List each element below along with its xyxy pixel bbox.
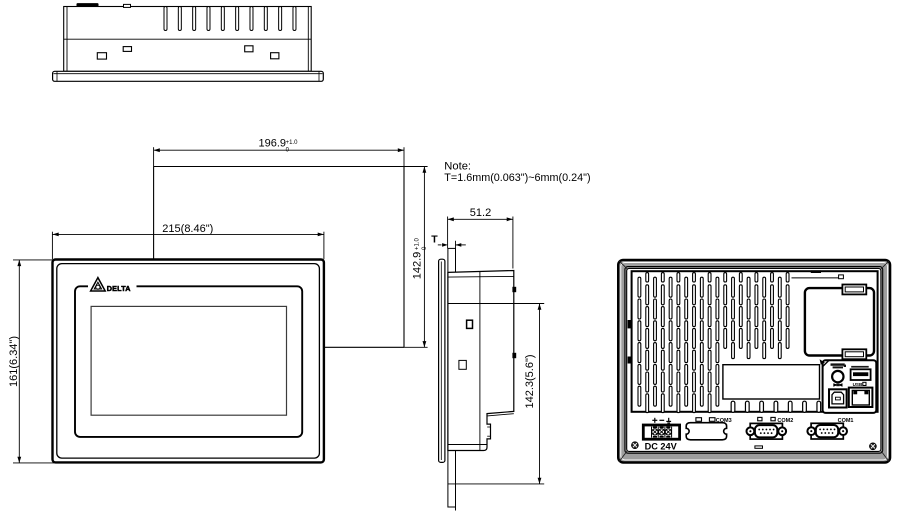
- svg-text:DC 24V: DC 24V: [645, 441, 678, 451]
- svg-text:51.2: 51.2: [470, 207, 491, 219]
- svg-text:Note:: Note:: [444, 160, 471, 172]
- svg-text:215(8.46"): 215(8.46"): [162, 223, 213, 235]
- svg-text:196.9: 196.9: [259, 137, 287, 149]
- svg-text:161(6.34"): 161(6.34"): [8, 336, 20, 387]
- svg-text:USB: USB: [853, 382, 863, 387]
- svg-text:142.9: 142.9: [412, 252, 424, 280]
- svg-text:DELTA: DELTA: [107, 284, 131, 293]
- svg-text:142.3(5.6"): 142.3(5.6"): [524, 354, 536, 408]
- svg-text:T=1.6mm(0.063")~6mm(0.24"): T=1.6mm(0.063")~6mm(0.24"): [444, 172, 590, 184]
- svg-text:+1.0: +1.0: [414, 237, 420, 250]
- svg-text:+1.0: +1.0: [286, 140, 299, 146]
- svg-text:T: T: [431, 234, 438, 246]
